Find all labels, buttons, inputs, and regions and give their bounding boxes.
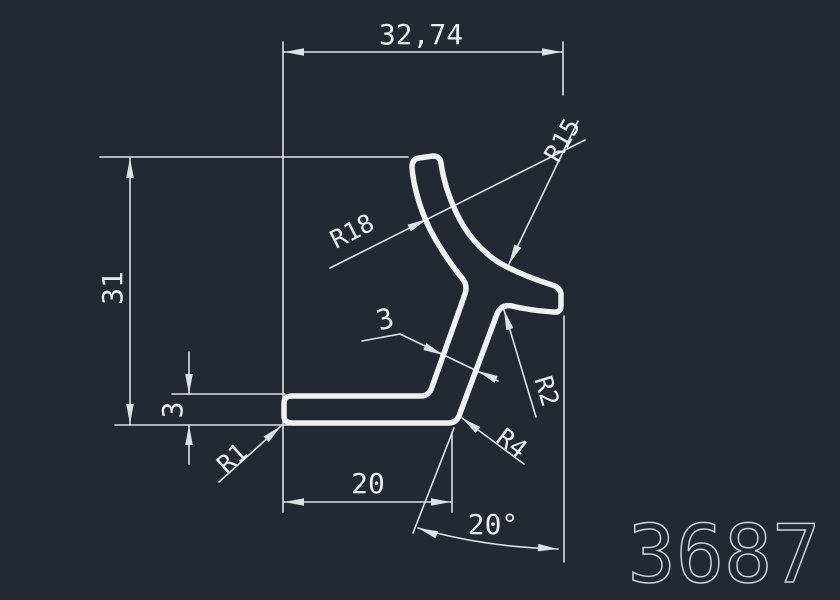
part-number: 3687 (628, 508, 821, 600)
cad-canvas: 32,743132020°R1R18R15R2R433687 (0, 0, 840, 600)
dim-text-height: 31 (96, 271, 129, 305)
dim-text-angle: 20° (468, 508, 519, 541)
dim-text-flange-length: 20 (351, 467, 385, 500)
dim-text-width: 32,74 (379, 18, 463, 51)
cad-drawing-stage: 32,743132020°R1R18R15R2R433687 (0, 0, 840, 600)
dim-text-flange-thickness: 3 (156, 402, 189, 419)
